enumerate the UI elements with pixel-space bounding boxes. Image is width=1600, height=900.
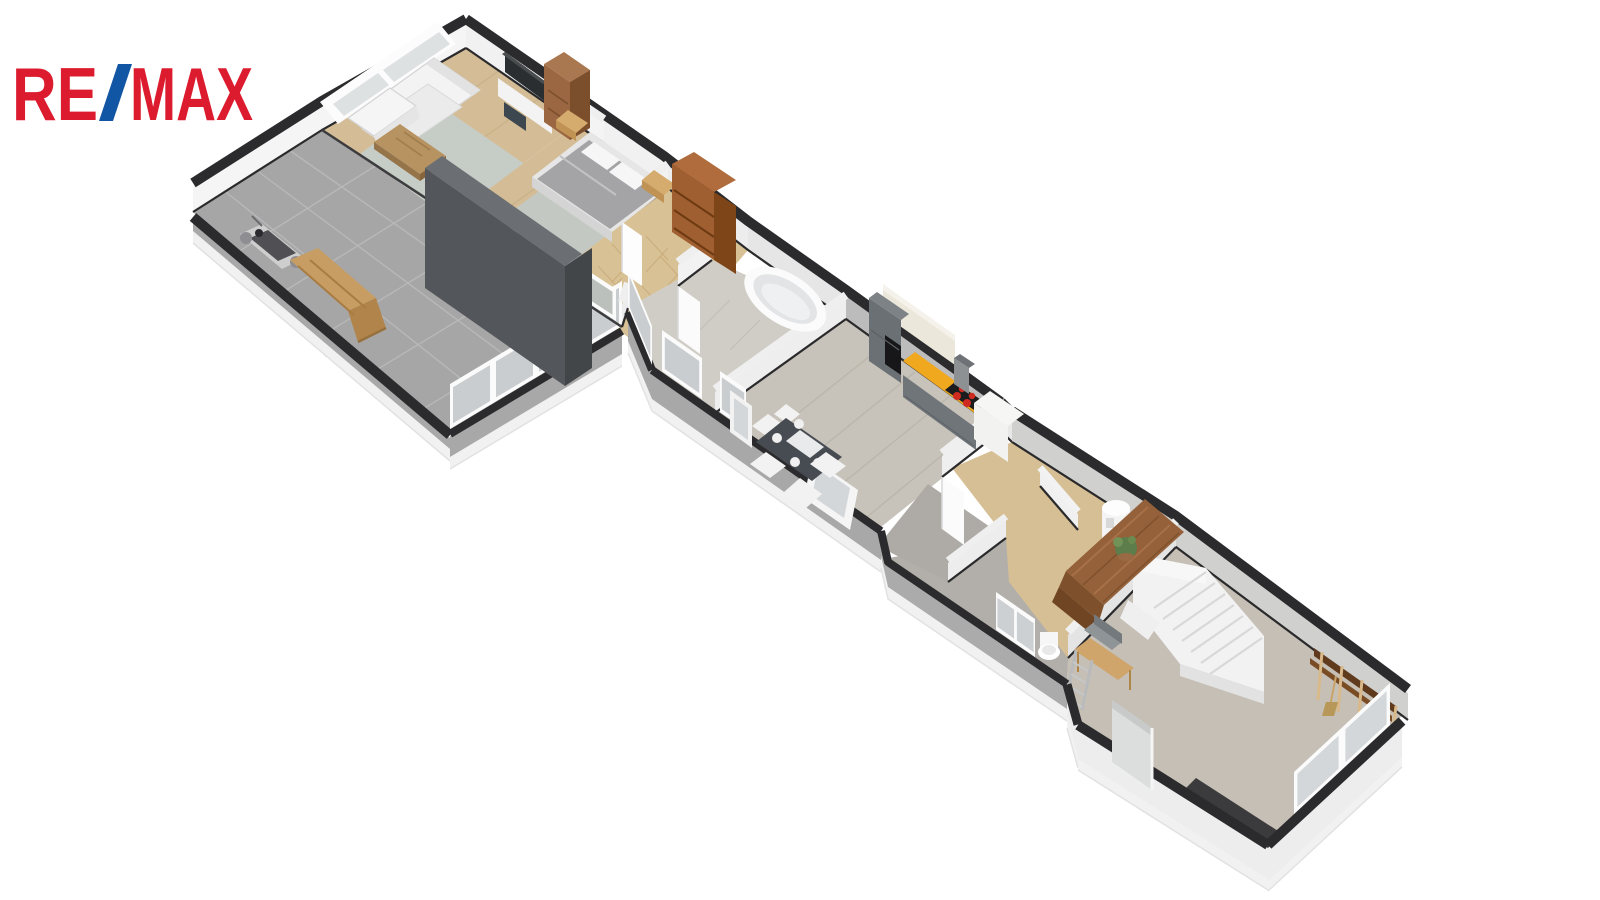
svg-text:RE: RE [12, 52, 98, 136]
svg-text:MAX: MAX [130, 52, 253, 136]
